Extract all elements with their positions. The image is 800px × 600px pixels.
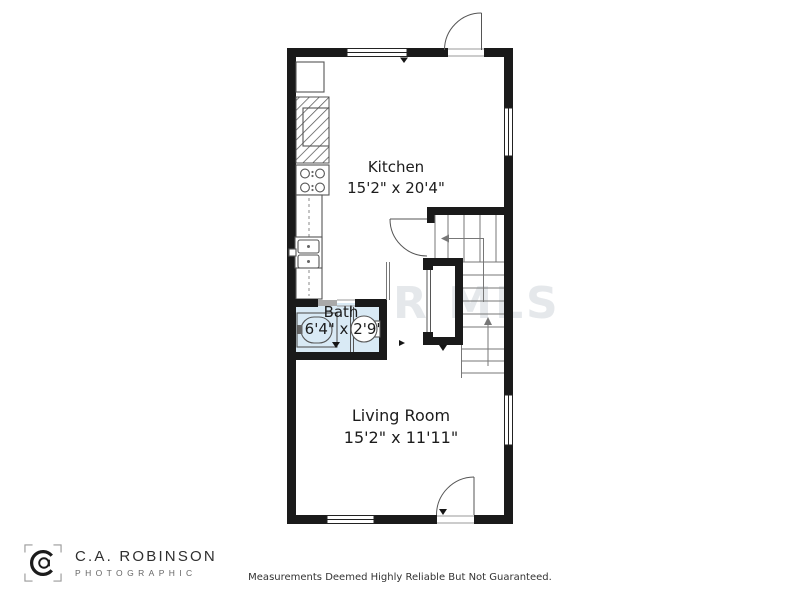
floorplan-drawing: R MLS xyxy=(0,0,800,600)
bath-label: Bath xyxy=(324,303,359,321)
hall-partition xyxy=(387,262,390,300)
company-name: C.A. ROBINSON xyxy=(75,548,217,565)
stove-symbol xyxy=(296,165,329,195)
countertop-hatched xyxy=(296,97,329,163)
disclaimer-text: Measurements Deemed Highly Reliable But … xyxy=(0,572,800,583)
entry-door-bottom xyxy=(437,477,475,523)
window-right-upper xyxy=(505,108,513,156)
refrigerator-symbol xyxy=(296,62,324,92)
bath-dims: 6'4" x 2'9" xyxy=(305,320,384,338)
entry-door-top xyxy=(445,13,485,56)
stair-walls xyxy=(427,207,513,223)
watermark: R MLS xyxy=(393,278,561,329)
living-room-dims: 15'2" x 11'11" xyxy=(344,428,458,447)
floorplan-page: R MLS xyxy=(0,0,800,600)
window-top xyxy=(347,49,407,57)
window-right-lower xyxy=(505,395,513,445)
kitchen-dims: 15'2" x 20'4" xyxy=(347,179,445,197)
interior-door xyxy=(390,219,427,256)
kitchen-label: Kitchen xyxy=(368,158,424,176)
living-room-label: Living Room xyxy=(352,406,450,425)
window-bottom xyxy=(327,516,374,524)
